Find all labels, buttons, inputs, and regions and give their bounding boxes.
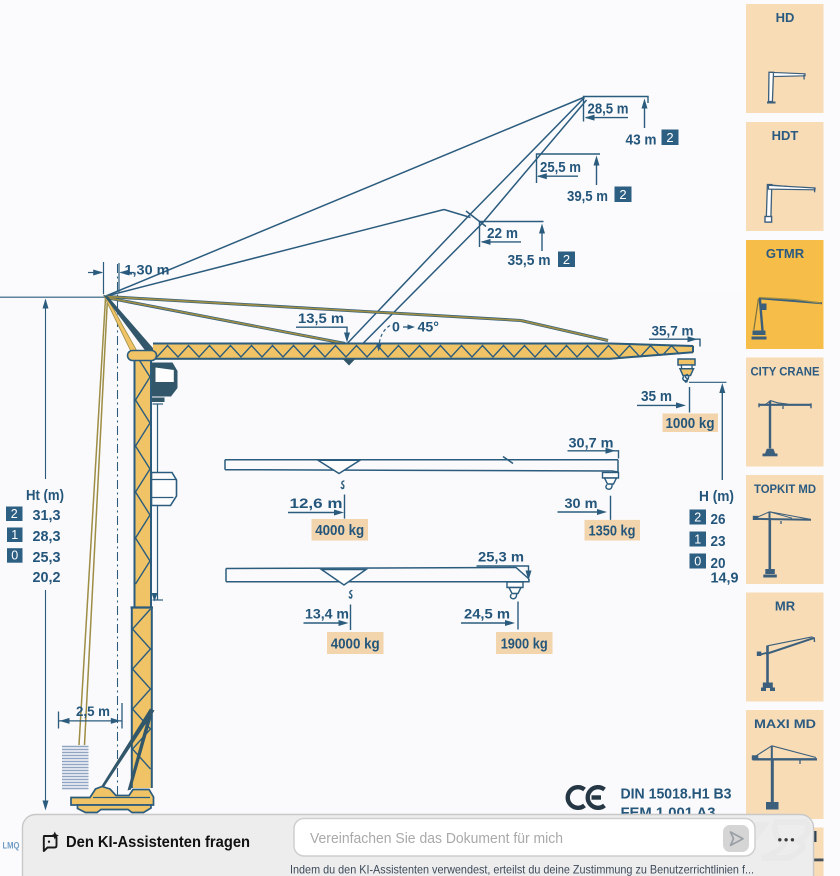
svg-text:35,7 m: 35,7 m — [652, 324, 694, 340]
svg-text:CITY CRANE: CITY CRANE — [751, 365, 820, 379]
svg-text:45°: 45° — [418, 320, 440, 336]
svg-text:2: 2 — [694, 510, 701, 524]
svg-text:20,2: 20,2 — [33, 570, 61, 586]
svg-text:Indem du den KI-Assistenten ve: Indem du den KI-Assistenten verwendest, … — [290, 863, 754, 876]
svg-text:25,3: 25,3 — [33, 550, 61, 566]
svg-text:28,3: 28,3 — [33, 529, 61, 545]
svg-text:25,3 m: 25,3 m — [478, 550, 524, 566]
svg-text:0: 0 — [694, 554, 701, 568]
svg-text:13,5 m: 13,5 m — [298, 311, 344, 327]
svg-text:23: 23 — [711, 534, 726, 550]
svg-text:31,3: 31,3 — [33, 508, 61, 524]
svg-text:MR: MR — [775, 599, 796, 614]
svg-text:HD: HD — [776, 10, 795, 25]
svg-text:0: 0 — [11, 549, 18, 563]
svg-text:H (m): H (m) — [699, 489, 734, 505]
svg-text:TOPKIT MD: TOPKIT MD — [754, 482, 816, 496]
svg-text:26: 26 — [711, 512, 726, 528]
svg-text:0: 0 — [392, 320, 400, 336]
svg-text:2: 2 — [619, 187, 626, 202]
svg-text:30 m: 30 m — [565, 496, 598, 512]
svg-text:4000 kg: 4000 kg — [315, 523, 364, 539]
svg-text:1000 kg: 1000 kg — [666, 416, 715, 432]
svg-text:22 m: 22 m — [487, 226, 518, 242]
svg-text:24,5 m: 24,5 m — [464, 607, 510, 623]
svg-text:GTMR: GTMR — [766, 246, 805, 261]
svg-text:43 m: 43 m — [626, 133, 657, 149]
svg-text:MAXI MD: MAXI MD — [754, 717, 816, 731]
svg-text:35,5 m: 35,5 m — [508, 253, 551, 269]
svg-text:2,5 m: 2,5 m — [76, 704, 110, 719]
svg-text:1: 1 — [694, 532, 701, 546]
svg-text:12,6 m: 12,6 m — [290, 496, 343, 512]
svg-text:DIN 15018.H1 B3: DIN 15018.H1 B3 — [621, 787, 732, 803]
svg-text:Den KI-Assistenten fragen: Den KI-Assistenten fragen — [66, 834, 250, 851]
svg-text:Ht (m): Ht (m) — [26, 488, 64, 504]
svg-text:2: 2 — [666, 130, 673, 145]
svg-text:1900 kg: 1900 kg — [501, 636, 548, 652]
svg-text:1,30 m: 1,30 m — [125, 263, 170, 278]
svg-text:1: 1 — [11, 528, 18, 542]
svg-text:Vereinfachen Sie das Dokument: Vereinfachen Sie das Dokument für mich — [310, 831, 563, 847]
svg-text:35 m: 35 m — [641, 389, 672, 405]
svg-text:2: 2 — [563, 252, 570, 267]
svg-text:HDT: HDT — [772, 128, 799, 143]
svg-text:39,5 m: 39,5 m — [567, 189, 608, 205]
svg-text:LMQ: LMQ — [3, 841, 20, 851]
svg-text:1350 kg: 1350 kg — [589, 523, 636, 539]
svg-text:2: 2 — [11, 507, 18, 521]
svg-text:4000 kg: 4000 kg — [331, 636, 380, 652]
svg-text:13,4 m: 13,4 m — [305, 607, 349, 623]
svg-text:14,9: 14,9 — [711, 570, 739, 586]
